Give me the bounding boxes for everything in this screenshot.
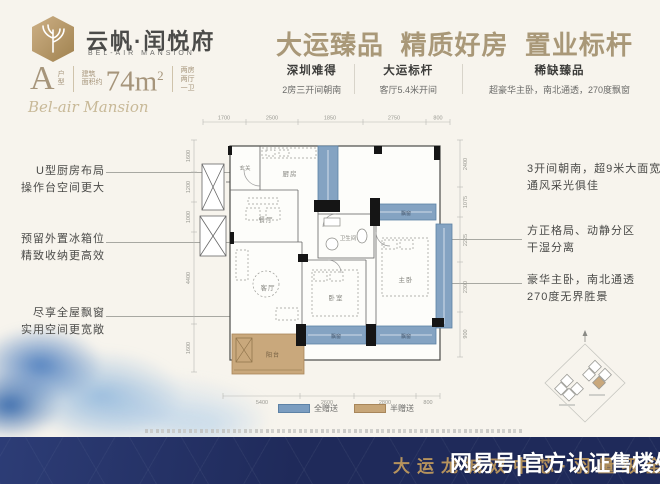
netease-watermark: 网易号|官方认证售楼处 — [450, 446, 660, 478]
legend-blue-swatch — [278, 404, 310, 413]
site-key-label-mark — [559, 404, 575, 406]
unit-letter: A — [30, 62, 55, 96]
svg-text:2225: 2225 — [463, 234, 469, 246]
legend-half-gift: 半赠送 — [354, 403, 414, 414]
area-prefix: 建筑面积约 — [82, 71, 103, 87]
legend-tan-swatch — [354, 404, 386, 413]
floor-plan: 1700 2500 1850 2750 800 1600 1200 1000 4… — [178, 112, 478, 412]
svg-text:主卧: 主卧 — [399, 275, 414, 284]
page-title: 大运臻品 精质好房 置业标杆 — [276, 25, 633, 62]
svg-text:1850: 1850 — [324, 116, 336, 122]
svg-text:卫生间: 卫生间 — [340, 234, 357, 242]
callout-master-bedroom: 豪华主卧，南北通透270度无界胜景 — [527, 272, 635, 306]
callout-fridge: 预留外置冰箱位精致收纳更高效 — [0, 231, 105, 265]
svg-text:1075: 1075 — [463, 196, 469, 208]
svg-text:1700: 1700 — [218, 116, 230, 122]
layout-summary: 两房两厅一卫 — [181, 66, 195, 93]
brand-script-signature: Bel-air Mansion — [28, 98, 149, 116]
svg-text:1600: 1600 — [186, 342, 192, 354]
north-arrow-icon — [583, 330, 588, 342]
callout-baywindow: 尽享全屋飘窗实用空间更宽敞 — [0, 305, 105, 339]
brand-logo-icon — [28, 14, 78, 64]
svg-text:2400: 2400 — [463, 158, 469, 170]
unit-area-row: A 户型 建筑面积约 74m2 两房两厅一卫 — [30, 60, 195, 98]
plan-legend: 全赠送 半赠送 — [278, 403, 414, 414]
building-cluster-2 — [583, 360, 612, 389]
brand-name-en: BEL-AIR MANSION — [88, 50, 195, 57]
svg-text:4400: 4400 — [186, 272, 192, 284]
area-value: 74m2 — [106, 61, 164, 97]
svg-text:飘窗: 飘窗 — [401, 210, 411, 217]
svg-text:餐厅: 餐厅 — [259, 215, 274, 224]
svg-text:1000: 1000 — [186, 211, 192, 223]
site-key-label-mark — [589, 394, 605, 396]
svg-text:900: 900 — [463, 329, 469, 338]
svg-text:800: 800 — [433, 116, 442, 122]
svg-text:2750: 2750 — [388, 116, 400, 122]
callout-zoning: 方正格局、动静分区干湿分离 — [527, 223, 635, 257]
callout-south-facing: 3开间朝南，超9米大面宽通风采光俱佳 — [527, 161, 660, 195]
selling-point: 深圳难得 2房三开间朝南 — [270, 62, 354, 96]
svg-text:阳台: 阳台 — [266, 351, 280, 359]
svg-text:客厅: 客厅 — [261, 283, 276, 292]
callout-kitchen: U型厨房布局操作台空间更大 — [0, 163, 105, 197]
selling-point: 稀缺臻品 超豪华主卧，南北通透，270度飘窗 — [463, 62, 656, 96]
svg-text:飘窗: 飘窗 — [401, 333, 411, 340]
svg-text:800: 800 — [423, 400, 432, 406]
svg-text:飘窗: 飘窗 — [331, 333, 341, 340]
svg-text:2500: 2500 — [266, 116, 278, 122]
divider — [172, 66, 173, 92]
svg-text:卧室: 卧室 — [329, 293, 344, 302]
building-core — [200, 164, 230, 256]
selling-points: 深圳难得 2房三开间朝南 大运标杆 客厅5.4米开间 稀缺臻品 超豪华主卧，南北… — [270, 62, 656, 96]
svg-text:2300: 2300 — [463, 281, 469, 293]
unit-label: 户型 — [58, 71, 65, 87]
divider — [73, 66, 74, 92]
legend-full-gift: 全赠送 — [278, 403, 338, 414]
svg-text:厨房: 厨房 — [283, 169, 298, 178]
svg-text:玄关: 玄关 — [239, 164, 251, 172]
site-key-diagram — [525, 328, 645, 428]
selling-point: 大运标杆 客厅5.4米开间 — [355, 62, 462, 96]
disclaimer-fine-print — [145, 429, 523, 433]
svg-text:1600: 1600 — [186, 150, 192, 162]
svg-text:1200: 1200 — [186, 181, 192, 193]
svg-text:5400: 5400 — [256, 400, 268, 406]
